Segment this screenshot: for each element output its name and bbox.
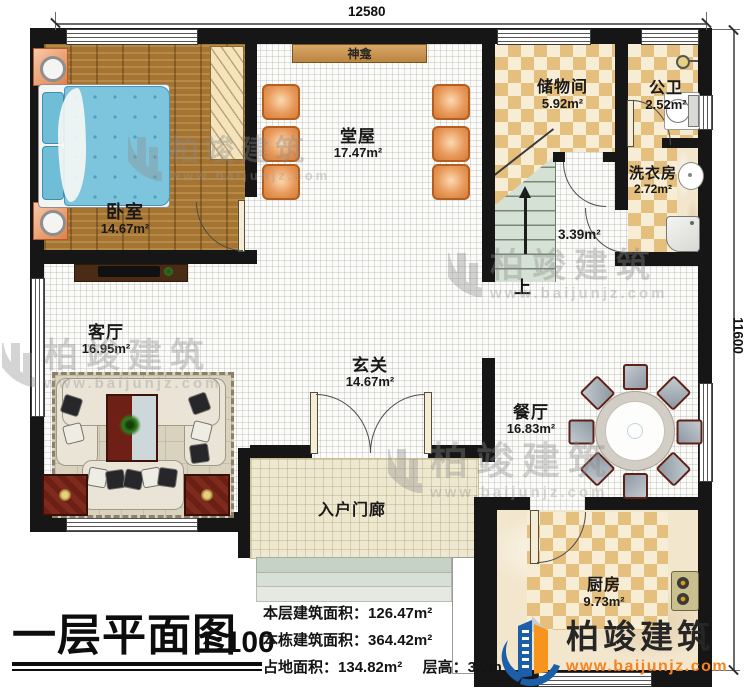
brand-company-name: 柏竣建筑 [566, 620, 714, 653]
wall-hall-storage [482, 44, 495, 152]
living-name: 客厅 [62, 323, 150, 342]
stairwell-area-label: 3.39m² [558, 227, 601, 242]
entry-door-leaf-right [424, 392, 432, 454]
brand-logo-svg [498, 610, 562, 686]
wall-porch-west [238, 448, 250, 558]
living-label: 客厅 16.95m² [62, 323, 150, 357]
wardrobe [210, 46, 244, 160]
dining-table-center [627, 423, 643, 439]
hall-name: 堂屋 [310, 127, 406, 146]
window-storage-north [497, 29, 591, 45]
kitchen-name: 厨房 [560, 577, 648, 595]
shrine-label: 神龛 [347, 47, 371, 61]
public-bath-label: 公卫 2.52m² [628, 80, 704, 112]
dining-label: 餐厅 16.83m² [490, 403, 572, 437]
storage-label: 储物间 5.92m² [505, 79, 620, 111]
brand-logo-icon [498, 610, 562, 686]
dining-chair [677, 420, 703, 445]
floor-plan-sheet: 神龛 卧室 14.67m² [0, 0, 750, 689]
foyer-name: 玄关 [302, 356, 438, 375]
dining-chair [623, 473, 648, 499]
stat-total-area-label: 本栋建筑面积： [263, 632, 368, 649]
stat-floor-area-value: 126.47m² [368, 605, 432, 622]
title-underline-2 [12, 669, 262, 671]
dining-area: 16.83m² [490, 422, 572, 437]
hall-chair [262, 164, 300, 200]
table-plant [119, 414, 141, 436]
wall-stairs-west [482, 152, 495, 282]
washing-machine-dial [690, 221, 694, 225]
sofa-cushion [189, 443, 210, 464]
stat-height-value: 3.9m [468, 659, 502, 676]
stat-total-area-value: 364.42m² [368, 632, 432, 649]
storage-name: 储物间 [505, 79, 620, 97]
wall-bedroom-east [245, 44, 257, 197]
wall-foyer-stub-right [428, 445, 482, 458]
stat-height-label: 层高： [423, 659, 468, 676]
window-bedroom-north [66, 29, 198, 45]
porch-step-3 [256, 586, 452, 602]
shower-head-icon [676, 55, 690, 69]
brand-website: www.baijunjz.com [566, 658, 728, 676]
window-living-west [31, 278, 45, 417]
laundry-label: 洗衣房 2.72m² [613, 166, 693, 196]
dimension-right-ext-top [712, 29, 740, 30]
bedroom-name: 卧室 [80, 202, 170, 222]
stair-up-arrow-head [519, 186, 531, 198]
nightstand-top [33, 48, 68, 86]
dimension-top-value: 12580 [348, 4, 386, 19]
shower-head-arm [688, 60, 698, 62]
end-table-right [184, 474, 230, 516]
stat-footprint-height: 占地面积：134.82m² 层高：3.9m [263, 656, 502, 677]
cooktop-burner-1 [677, 577, 689, 589]
title-underline-1 [12, 662, 262, 666]
foyer-label: 玄关 14.67m² [302, 356, 438, 390]
wall-kitchen-north-left [497, 497, 530, 510]
living-area: 16.95m² [62, 342, 150, 357]
stat-footprint-value: 134.82m² [338, 659, 402, 676]
dimension-right-value: 11600 [731, 312, 746, 360]
porch-label: 入户门廊 [318, 496, 386, 520]
stat-footprint-label: 占地面积： [263, 659, 338, 676]
bedroom-label: 卧室 14.67m² [80, 202, 170, 237]
shrine-table: 神龛 [292, 44, 427, 63]
bedroom-area: 14.67m² [80, 222, 170, 237]
wall-laundry-south [615, 252, 712, 266]
sofa-cushion [157, 467, 178, 488]
public-bath-area: 2.52m² [628, 98, 704, 113]
kitchen-area: 9.73m² [560, 595, 648, 610]
wall-kitchen-west [474, 497, 497, 677]
dining-name: 餐厅 [490, 403, 572, 422]
hall-chair [262, 84, 300, 120]
storage-area: 5.92m² [505, 97, 620, 112]
stat-floor-area-label: 本层建筑面积： [263, 605, 368, 622]
hall-chair [432, 84, 470, 120]
washing-machine [666, 216, 700, 252]
dimension-top-line [55, 23, 707, 25]
stat-floor-area: 本层建筑面积：126.47m² [263, 602, 432, 623]
end-table-left [42, 474, 88, 516]
cabinet-plant [164, 267, 173, 276]
cooktop-burner-2 [677, 593, 689, 605]
tv-set [98, 266, 160, 277]
window-bath-north [641, 29, 699, 45]
wall-foyer-stub-left [250, 445, 312, 458]
hall-chair [262, 126, 300, 162]
wall-storage-south-right [603, 152, 615, 162]
laundry-name: 洗衣房 [613, 166, 693, 183]
hall-chair [432, 164, 470, 200]
hall-label: 堂屋 17.47m² [310, 127, 406, 161]
stair-up-arrow-shaft [524, 196, 527, 254]
kitchen-label: 厨房 9.73m² [560, 577, 648, 609]
laundry-area: 2.72m² [613, 183, 693, 196]
wall-storage-south-left [553, 152, 565, 162]
stat-total-area: 本栋建筑面积：364.42m² [263, 629, 432, 650]
bed-duvet-fold [58, 88, 86, 202]
dining-chair [569, 420, 595, 445]
public-bath-name: 公卫 [628, 80, 704, 98]
foyer-area: 14.67m² [302, 375, 438, 390]
dining-chair [623, 364, 648, 390]
hall-chair [432, 126, 470, 162]
wall-bedroom-south [30, 250, 257, 264]
hall-area: 17.47m² [310, 146, 406, 161]
stair-up-label: 上 [514, 273, 531, 298]
